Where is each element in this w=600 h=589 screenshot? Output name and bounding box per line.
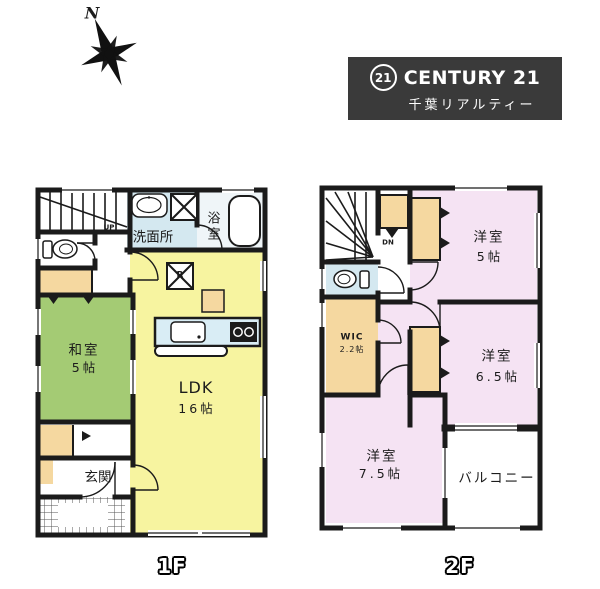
stairs-up-label: UP (104, 225, 115, 232)
kitchen-sink-icon (171, 322, 205, 342)
balcony-label: バルコニー (458, 472, 535, 486)
stairs-dn-label: DN (382, 240, 394, 247)
bathroom-label: 浴室 (206, 211, 219, 243)
room65-label: 洋室 (482, 350, 513, 364)
bathtub-icon (229, 196, 260, 246)
floor2-label: 2F (445, 554, 475, 578)
compass-rose-icon (65, 8, 151, 94)
washroom-label: 洗面所 (133, 231, 174, 245)
stove-icon (230, 322, 257, 342)
refrigerator-label: R (177, 272, 184, 281)
logo-circle-text: 21 (375, 71, 392, 85)
stairs-2f (326, 192, 373, 260)
toilet-icon-2f (334, 271, 369, 289)
logo-subtitle: 千葉リアルティー (374, 94, 535, 113)
room75-label: 洋室 (367, 450, 398, 464)
ldk-size: 16帖 (178, 403, 215, 416)
century21-logo: 21 CENTURY 21 千葉リアルティー (348, 57, 562, 120)
wic-size: 2.2帖 (340, 346, 365, 354)
toilet-icon (43, 240, 77, 258)
floor1-label: 1F (157, 554, 187, 578)
ldk-label: LDK (179, 380, 214, 396)
century21-circle-icon: 21 (370, 64, 397, 91)
logo-brand-text: CENTURY 21 (404, 67, 541, 89)
washitsu-label: 和室 (69, 344, 100, 358)
room5-label: 洋室 (474, 231, 505, 245)
wic-label: WIC (341, 334, 364, 343)
genkan-label: 玄関 (85, 471, 112, 485)
washing-machine-icon (171, 194, 197, 220)
room5-size: 5帖 (477, 251, 503, 264)
kitchen-cabinet (202, 290, 224, 312)
floorplan-canvas: N 21 CENTURY 21 千葉リアルティー (0, 0, 600, 589)
vanity-sink-icon (132, 194, 167, 217)
washitsu-size: 5帖 (72, 362, 98, 375)
room65-size: 6.5帖 (476, 371, 520, 384)
room75-size: 7.5帖 (359, 468, 403, 481)
